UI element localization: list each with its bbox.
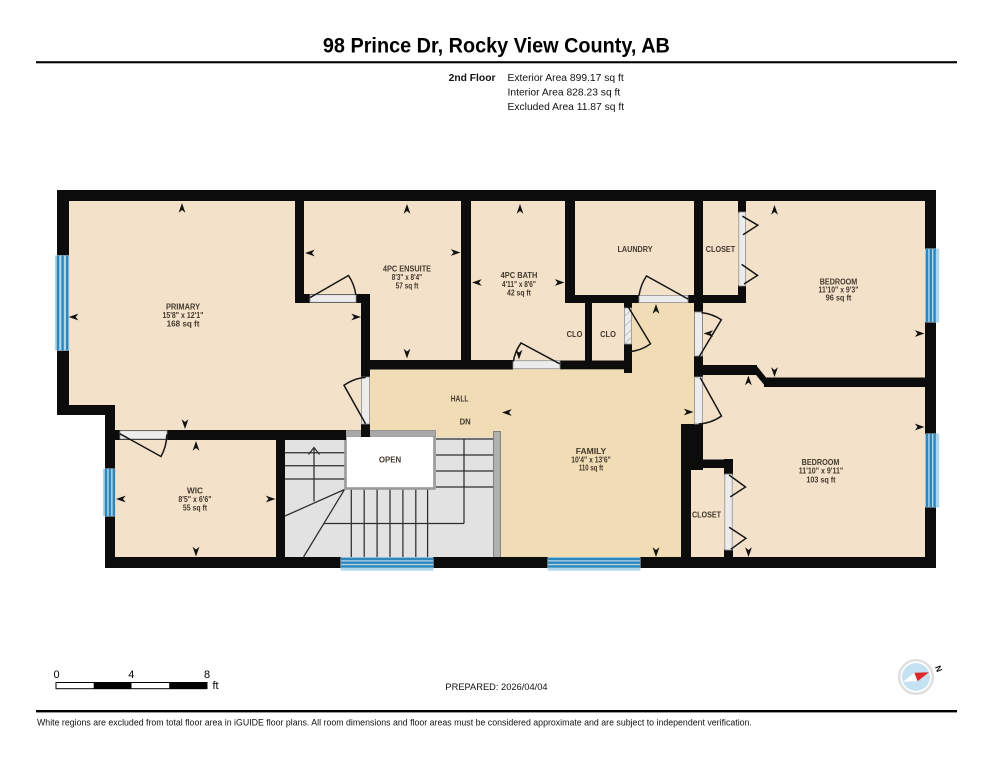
svg-text:CLOSET: CLOSET: [692, 511, 721, 520]
svg-text:0: 0: [53, 669, 59, 681]
svg-text:57 sq ft: 57 sq ft: [396, 282, 419, 291]
svg-text:Interior Area 828.23 sq ft: Interior Area 828.23 sq ft: [508, 88, 621, 99]
svg-text:Excluded Area 11.87 sq ft: Excluded Area 11.87 sq ft: [508, 102, 625, 113]
svg-text:CLO: CLO: [600, 330, 616, 339]
svg-text:CLOSET: CLOSET: [706, 245, 735, 254]
svg-text:4'11" x 8'6": 4'11" x 8'6": [502, 280, 536, 289]
svg-text:8: 8: [204, 669, 210, 681]
svg-text:4: 4: [128, 669, 134, 681]
svg-text:ft: ft: [213, 680, 219, 692]
svg-text:White regions are excluded fro: White regions are excluded from total fl…: [37, 718, 752, 728]
svg-text:N: N: [933, 664, 945, 673]
svg-text:PREPARED: 2026/04/04: PREPARED: 2026/04/04: [445, 682, 547, 692]
svg-text:110 sq ft: 110 sq ft: [579, 464, 603, 473]
svg-text:4PC BATH: 4PC BATH: [501, 271, 538, 280]
svg-text:11'10" x 9'11": 11'10" x 9'11": [799, 467, 844, 476]
svg-text:96 sq ft: 96 sq ft: [826, 294, 852, 303]
svg-text:55 sq ft: 55 sq ft: [183, 504, 207, 513]
svg-text:HALL: HALL: [451, 395, 469, 404]
svg-text:CLO: CLO: [567, 330, 583, 339]
svg-text:BEDROOM: BEDROOM: [802, 458, 840, 467]
svg-text:Exterior Area 899.17 sq ft: Exterior Area 899.17 sq ft: [508, 73, 624, 84]
svg-text:LAUNDRY: LAUNDRY: [618, 245, 654, 254]
svg-text:4PC ENSUITE: 4PC ENSUITE: [383, 264, 432, 273]
svg-text:168 sq ft: 168 sq ft: [167, 320, 200, 329]
svg-text:103 sq ft: 103 sq ft: [806, 475, 835, 484]
svg-text:42 sq ft: 42 sq ft: [507, 289, 531, 298]
svg-text:2nd Floor: 2nd Floor: [449, 73, 496, 84]
svg-text:OPEN: OPEN: [379, 456, 402, 465]
svg-text:DN: DN: [460, 418, 471, 427]
svg-text:98 Prince Dr, Rocky View Count: 98 Prince Dr, Rocky View County, AB: [323, 34, 670, 58]
